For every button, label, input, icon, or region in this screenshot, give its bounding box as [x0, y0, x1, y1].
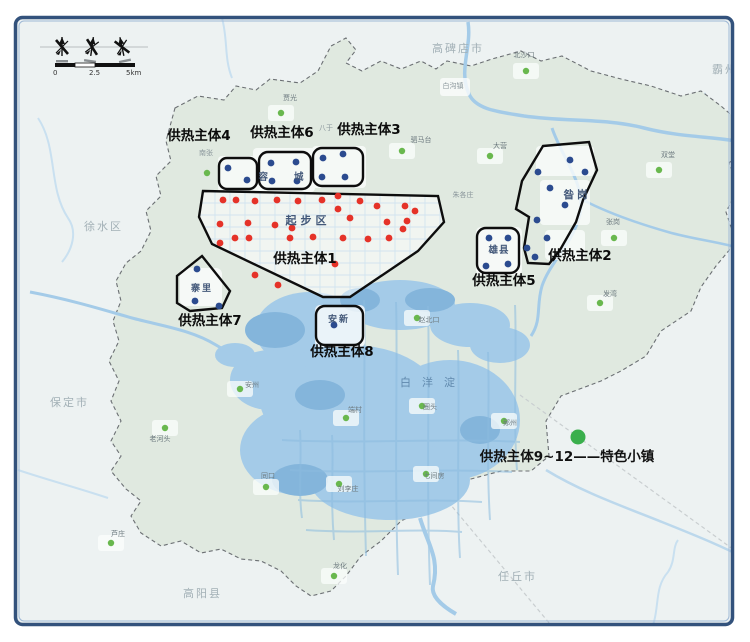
- red-dot: [404, 218, 411, 225]
- scale-tick-end: 5km: [126, 69, 142, 77]
- blue-dot: [544, 235, 551, 242]
- zone-inner-label: 安新: [328, 313, 350, 325]
- zone-inner-label: 寨里: [190, 282, 213, 294]
- village-label: 鄚州: [503, 418, 517, 427]
- village-label: 同口: [261, 472, 275, 480]
- town-label: 南张: [199, 148, 213, 157]
- village-label: 七间房: [424, 471, 445, 480]
- village-green-dot: [263, 484, 269, 490]
- zone-label: 供热主体8: [309, 343, 373, 360]
- blue-dot: [547, 185, 554, 192]
- legend-green-dot: [571, 430, 586, 445]
- village-label: 芦庄: [111, 529, 125, 538]
- legend-label: 供热主体9~12——特色小镇: [479, 448, 655, 465]
- zone-label: 供热主体4: [166, 127, 230, 144]
- red-dot: [319, 197, 326, 204]
- village-label: 双堂: [661, 150, 675, 159]
- village-green-dot: [162, 425, 168, 431]
- village-green-dot: [597, 300, 603, 306]
- blue-dot: [225, 165, 232, 172]
- city-label: 任丘市: [498, 569, 537, 583]
- village-green-dot: [523, 68, 529, 74]
- blue-dot: [194, 266, 201, 273]
- zone-inner-label: 容城: [257, 171, 329, 183]
- red-dot: [246, 235, 253, 242]
- red-dot: [400, 226, 407, 233]
- red-dot: [384, 219, 391, 226]
- map-canvas: 高碑店市霸州市徐水区保定市高阳县任丘市 白沟镇南张八于朱各庄 北沙口贾光驷马台大…: [0, 0, 750, 638]
- blue-dot: [532, 254, 539, 261]
- red-dot: [217, 240, 224, 247]
- zone-inner-label: 雄县: [487, 244, 509, 256]
- village-green-dot: [487, 153, 493, 159]
- red-dot: [233, 197, 240, 204]
- blue-dot: [483, 263, 490, 270]
- village-label: 老河头: [150, 434, 171, 443]
- red-dot: [275, 282, 282, 289]
- red-dot: [220, 197, 227, 204]
- zone-inner-label: 起步区: [285, 213, 331, 227]
- red-dot: [357, 198, 364, 205]
- blue-dot: [486, 235, 493, 242]
- red-dot: [272, 222, 279, 229]
- village-label: 北沙口: [514, 51, 535, 59]
- red-dot: [335, 206, 342, 213]
- zone-label: 供热主体7: [177, 312, 241, 329]
- village-green-dot: [204, 170, 210, 176]
- blue-dot: [562, 202, 569, 209]
- blue-dot: [293, 159, 300, 166]
- blue-dot: [244, 177, 251, 184]
- blue-dot: [567, 157, 574, 164]
- blue-dot: [342, 174, 349, 181]
- village-label: 大营: [493, 141, 507, 150]
- city-label: 高阳县: [183, 586, 222, 600]
- city-label: 徐水区: [84, 219, 123, 233]
- zone-label: 供热主体2: [547, 247, 611, 264]
- scale-tick-mid: 2.5: [89, 69, 100, 77]
- blue-dot: [535, 169, 542, 176]
- red-dot: [347, 215, 354, 222]
- red-dot: [402, 203, 409, 210]
- red-dot: [252, 272, 259, 279]
- village-green-dot: [331, 573, 337, 579]
- red-dot: [340, 235, 347, 242]
- village-label: 贾光: [283, 93, 297, 102]
- village-green-dot: [611, 235, 617, 241]
- zone-label: 供热主体5: [471, 272, 535, 289]
- scale-tick-0: 0: [53, 69, 57, 77]
- town-label: 八于: [319, 124, 333, 132]
- blue-dot: [340, 151, 347, 158]
- village-green-dot: [237, 386, 243, 392]
- red-dot: [217, 221, 224, 228]
- village-green-dot: [108, 540, 114, 546]
- village-label: 张岗: [606, 217, 620, 226]
- blue-dot: [216, 303, 223, 310]
- red-dot: [295, 198, 302, 205]
- village-label: 赵北口: [419, 315, 440, 324]
- village-label: 刘李庄: [338, 484, 359, 493]
- village-label: 圈头: [423, 402, 437, 411]
- zone-label: 供热主体6: [249, 124, 313, 141]
- village-green-dot: [399, 148, 405, 154]
- blue-dot: [524, 245, 531, 252]
- town-label: 朱各庄: [453, 190, 474, 199]
- blue-dot: [192, 298, 199, 305]
- red-dot: [274, 197, 281, 204]
- red-dot: [252, 198, 259, 205]
- zone-label: 供热主体1: [272, 250, 336, 267]
- village-green-dot: [343, 415, 349, 421]
- village-label: 发湾: [603, 289, 617, 298]
- city-label: 保定市: [50, 395, 89, 409]
- blue-dot: [505, 235, 512, 242]
- blue-dot: [534, 217, 541, 224]
- village-label: 安州: [245, 380, 259, 389]
- village-green-dot: [278, 110, 284, 116]
- blue-dot: [268, 160, 275, 167]
- blue-dot: [582, 169, 589, 176]
- village-label: 龙化: [333, 561, 347, 570]
- red-dot: [287, 235, 294, 242]
- village-label: 端村: [348, 405, 362, 414]
- map-screenshot: 高碑店市霸州市徐水区保定市高阳县任丘市 白沟镇南张八于朱各庄 北沙口贾光驷马台大…: [0, 0, 750, 638]
- red-dot: [335, 193, 342, 200]
- lake-label: 白洋淀: [400, 375, 466, 389]
- red-dot: [386, 235, 393, 242]
- red-dot: [365, 236, 372, 243]
- red-dot: [310, 234, 317, 241]
- map-area: 高碑店市霸州市徐水区保定市高阳县任丘市 白沟镇南张八于朱各庄 北沙口贾光驷马台大…: [16, 18, 750, 636]
- city-label: 高碑店市: [432, 41, 484, 55]
- red-dot: [232, 235, 239, 242]
- village-label: 驷马台: [411, 135, 432, 144]
- red-dot: [245, 220, 252, 227]
- zone-inner-label: 昝岗: [564, 188, 591, 201]
- red-dot: [412, 208, 419, 215]
- blue-dot: [320, 155, 327, 162]
- zone-label: 供热主体3: [336, 121, 400, 138]
- blue-dot: [505, 261, 512, 268]
- town-label: 白沟镇: [443, 81, 464, 90]
- village-green-dot: [656, 167, 662, 173]
- red-dot: [374, 203, 381, 210]
